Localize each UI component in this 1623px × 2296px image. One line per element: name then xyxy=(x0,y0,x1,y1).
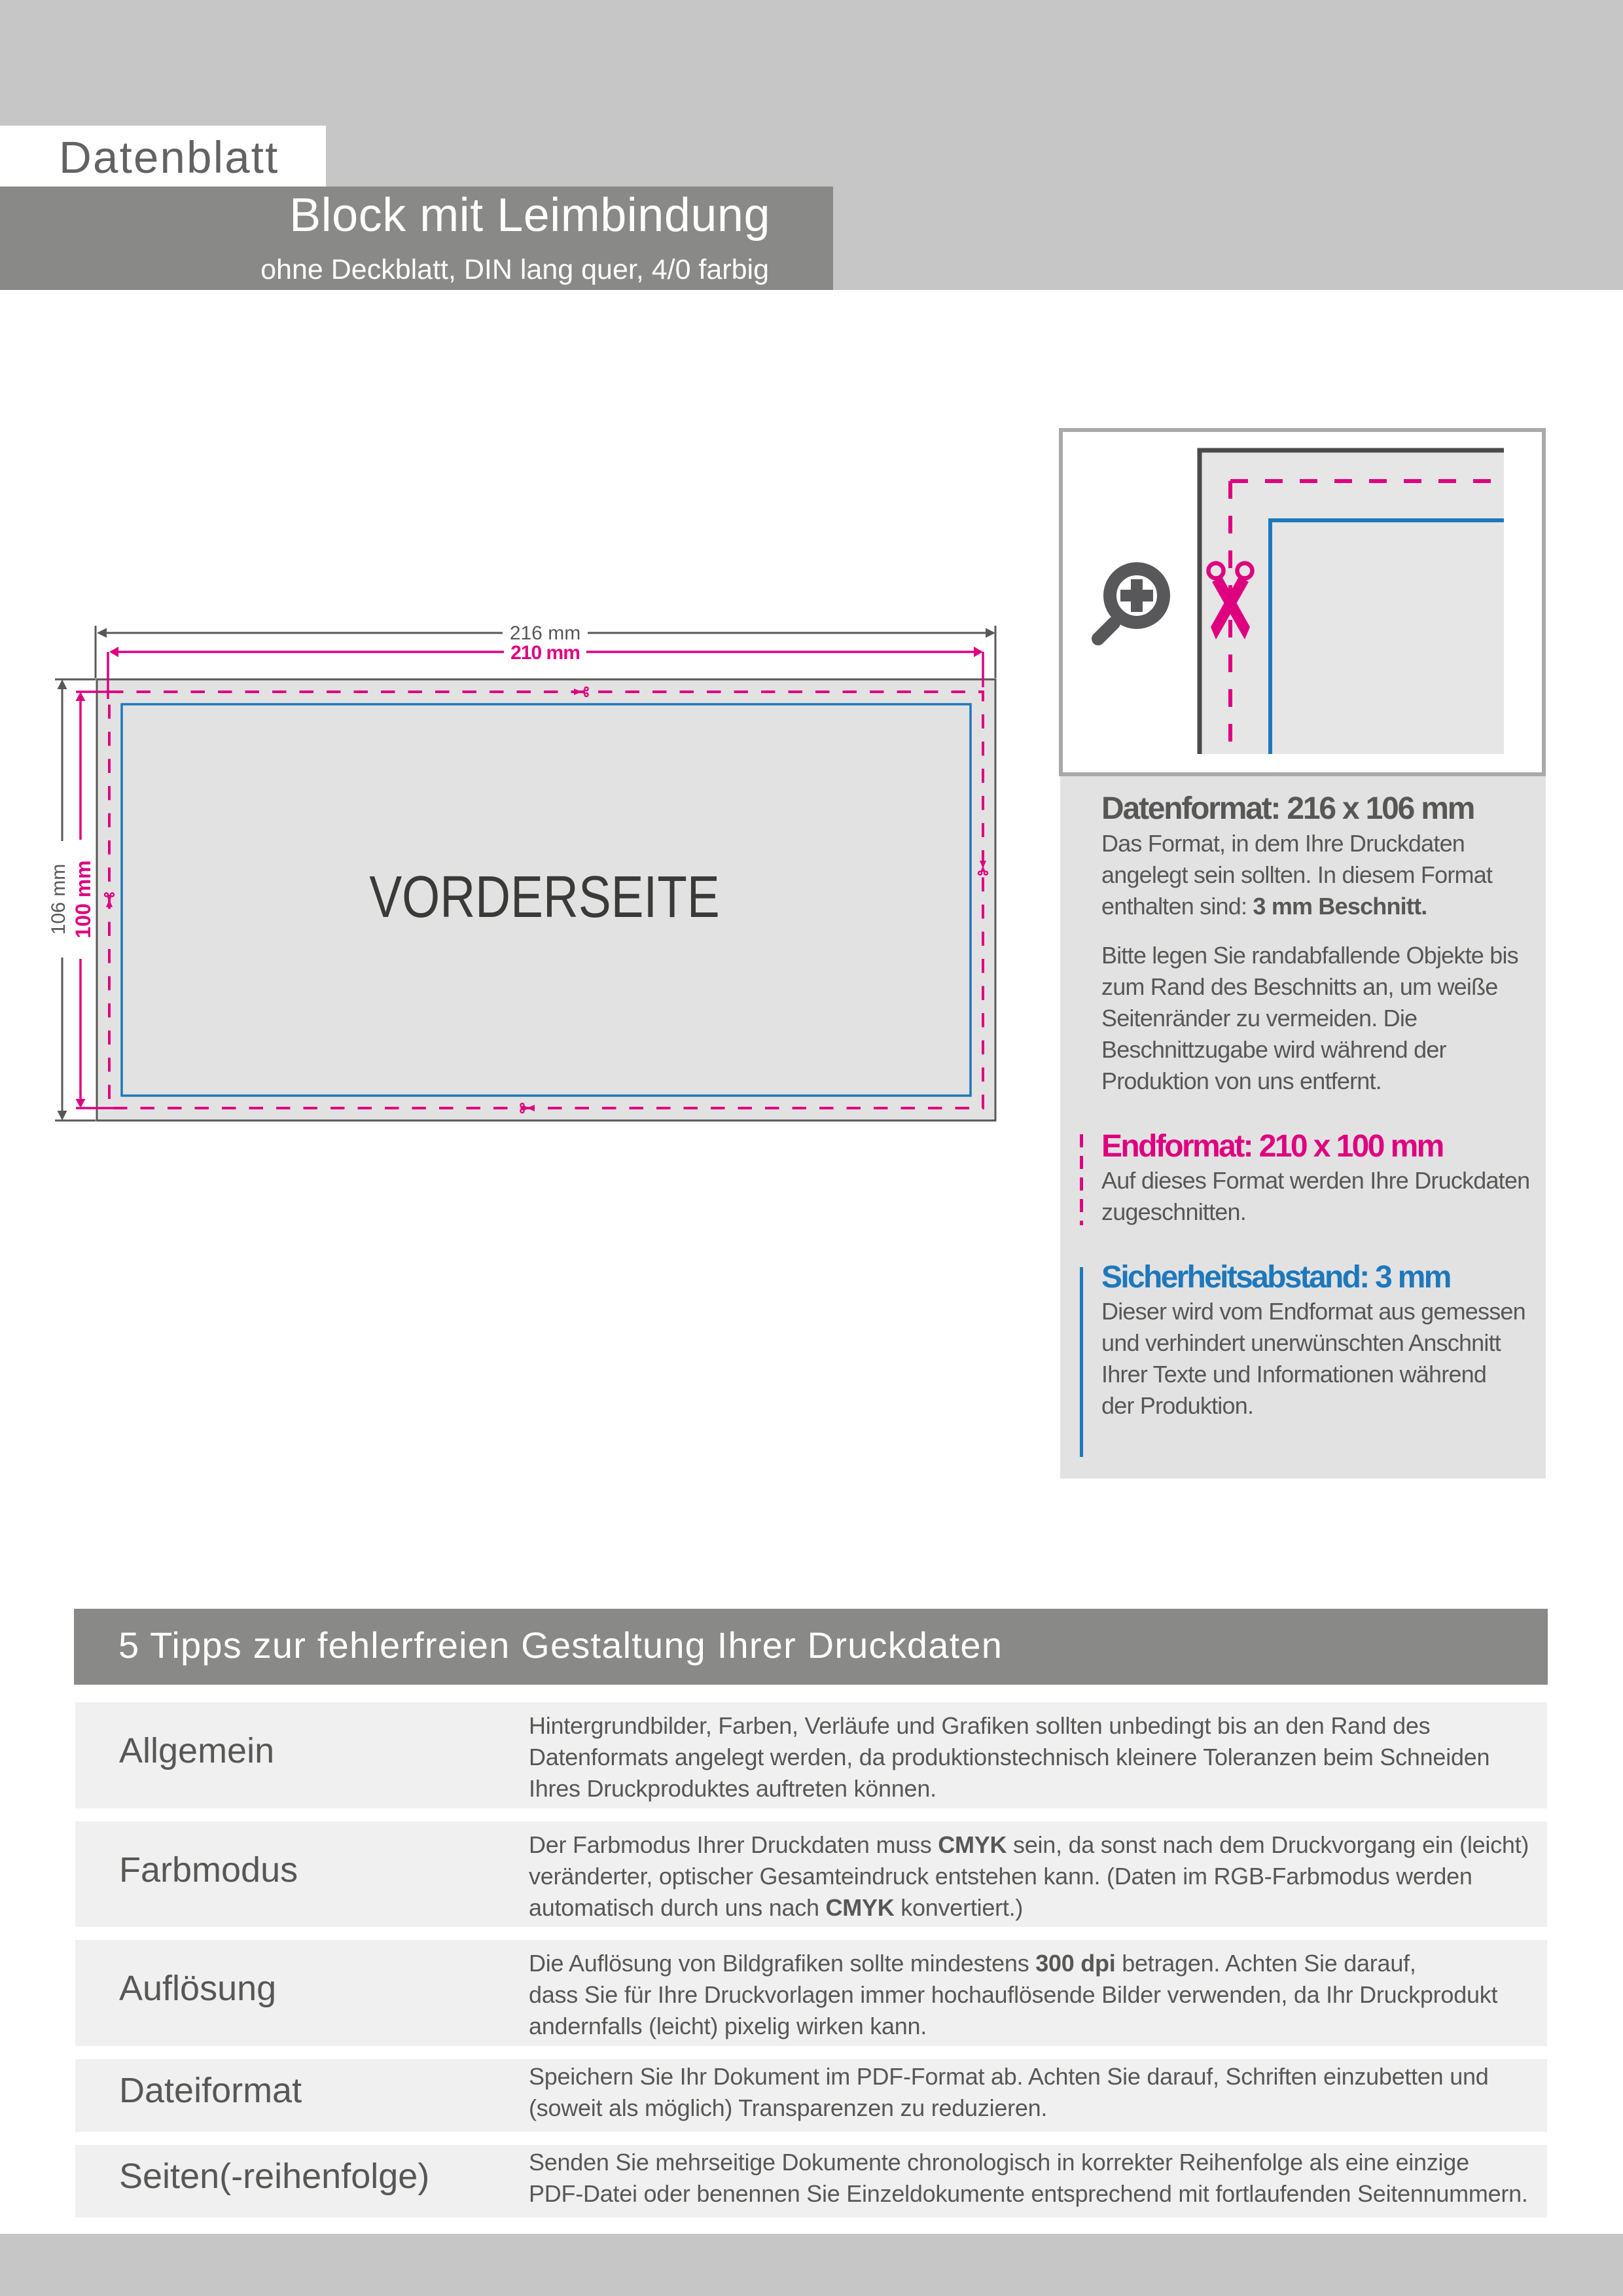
svg-text:100 mm: 100 mm xyxy=(71,860,95,938)
svg-text:VORDERSEITE: VORDERSEITE xyxy=(369,863,719,929)
svg-text:216 mm: 216 mm xyxy=(510,622,580,644)
svg-text:106 mm: 106 mm xyxy=(48,864,69,935)
svg-text:210 mm: 210 mm xyxy=(510,642,580,664)
